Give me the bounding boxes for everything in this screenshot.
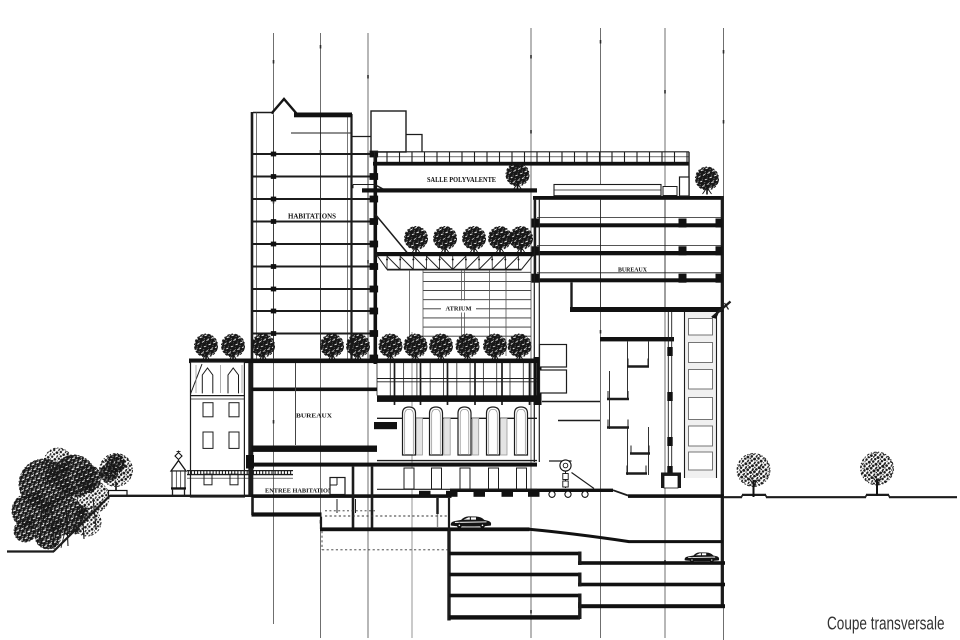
svg-text:BUREAUX: BUREAUX: [618, 267, 647, 274]
svg-text:ATRIUM: ATRIUM: [446, 306, 472, 313]
svg-text:ENTREE HABITATIONS: ENTREE HABITATIONS: [265, 488, 336, 495]
svg-text:Coupe transversale: Coupe transversale: [827, 614, 945, 634]
svg-text:SALLE POLYVALENTE: SALLE POLYVALENTE: [427, 176, 496, 184]
svg-text:HABITATIONS: HABITATIONS: [288, 213, 336, 221]
svg-text:BUREAUX: BUREAUX: [296, 413, 332, 420]
